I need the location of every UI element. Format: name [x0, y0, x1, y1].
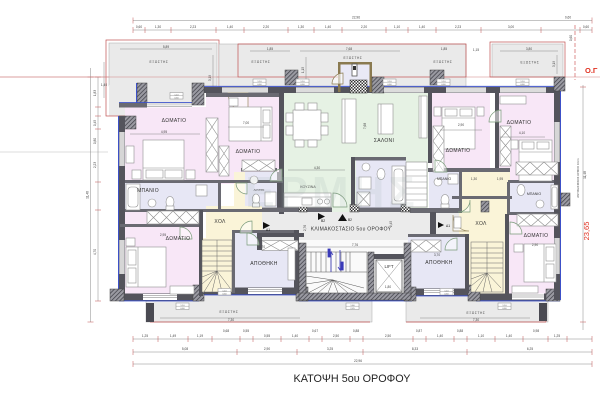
svg-text:ΣΑΛΟΝΙ: ΣΑΛΟΝΙ — [374, 138, 394, 144]
svg-text:1,40: 1,40 — [325, 25, 331, 29]
svg-text:7,30: 7,30 — [228, 318, 234, 322]
svg-text:ΑΠΟΘΗΚΗ: ΑΠΟΘΗΚΗ — [425, 260, 452, 266]
svg-text:1,40: 1,40 — [292, 334, 298, 338]
svg-text:B2: B2 — [348, 218, 352, 222]
svg-text:0,68: 0,68 — [223, 329, 229, 333]
svg-text:1,85: 1,85 — [267, 47, 273, 51]
svg-text:B2: B2 — [321, 219, 325, 223]
svg-text:3,70: 3,70 — [434, 253, 440, 257]
svg-text:ΑΝΤΙΣΕΙΣΜΙΚΟΣ ΑΡΜΟΣ 10cm: ΑΝΤΙΣΕΙΣΜΙΚΟΣ ΑΡΜΟΣ 10cm — [576, 158, 580, 198]
svg-text:3,00: 3,00 — [508, 25, 514, 29]
svg-text:2,50: 2,50 — [385, 334, 391, 338]
svg-text:ΔΩΜΑΤΙΟ: ΔΩΜΑΤΙΟ — [507, 120, 532, 126]
svg-text:0,80: 0,80 — [93, 138, 97, 144]
svg-text:2,23: 2,23 — [190, 25, 196, 29]
svg-text:3,70: 3,70 — [259, 245, 265, 249]
svg-text:0,67: 0,67 — [312, 329, 318, 333]
svg-text:1,40: 1,40 — [101, 83, 107, 87]
svg-text:1,40: 1,40 — [437, 334, 443, 338]
svg-text:2,90: 2,90 — [264, 347, 270, 351]
svg-text:ΚΑΤΟΨΗ 5ου ΟΡΟΦΟΥ: ΚΑΤΟΨΗ 5ου ΟΡΟΦΟΥ — [294, 373, 411, 385]
svg-text:0,98: 0,98 — [533, 329, 539, 333]
svg-text:5,89: 5,89 — [163, 45, 169, 49]
svg-text:ΕΞΩΣΤΗΣ: ΕΞΩΣΤΗΣ — [467, 311, 486, 315]
svg-text:0,60: 0,60 — [569, 35, 573, 41]
svg-text:1,40: 1,40 — [419, 25, 425, 29]
svg-text:6,25: 6,25 — [527, 347, 533, 351]
svg-text:2,95: 2,95 — [160, 233, 166, 237]
svg-text:2,23: 2,23 — [93, 162, 97, 168]
svg-text:1,15: 1,15 — [301, 67, 305, 73]
svg-text:4,95: 4,95 — [161, 130, 167, 134]
svg-text:ΕΞΩΣΤΗΣ: ΕΞΩΣΤΗΣ — [150, 60, 169, 64]
svg-text:0,60: 0,60 — [136, 25, 142, 29]
svg-text:ΜΠΑΝΙΟ: ΜΠΑΝΙΟ — [137, 188, 159, 194]
svg-text:ΔΩΜΑΤΙΟ: ΔΩΜΑΤΙΟ — [236, 149, 261, 155]
svg-text:ΕΡΜΗΣ: ΕΡΜΗΣ — [245, 168, 419, 217]
svg-text:ΕΞΩΣΤΗΣ: ΕΞΩΣΤΗΣ — [521, 61, 540, 65]
svg-text:8,33: 8,33 — [412, 347, 418, 351]
svg-text:Δ1: Δ1 — [266, 228, 270, 232]
svg-text:11,48: 11,48 — [86, 191, 90, 199]
svg-text:23,65: 23,65 — [582, 222, 591, 241]
svg-text:ΕΞΩΣΤΗΣ: ΕΞΩΣΤΗΣ — [252, 60, 271, 64]
svg-text:0,60: 0,60 — [583, 25, 589, 29]
svg-text:1,10: 1,10 — [394, 25, 400, 29]
svg-text:1,40: 1,40 — [506, 334, 512, 338]
svg-text:2,90: 2,90 — [532, 243, 538, 247]
svg-text:1,30: 1,30 — [298, 25, 304, 29]
svg-text:0,88: 0,88 — [457, 329, 463, 333]
svg-text:5,08: 5,08 — [182, 347, 188, 351]
svg-text:0,45: 0,45 — [93, 120, 97, 126]
svg-text:3,25: 3,25 — [327, 347, 333, 351]
svg-text:2,90: 2,90 — [458, 123, 464, 127]
svg-text:ΔΩΜΑΤΙΟ: ΔΩΜΑΤΙΟ — [162, 118, 187, 124]
svg-text:4,10: 4,10 — [519, 131, 525, 135]
svg-text:2,76: 2,76 — [303, 225, 307, 231]
svg-text:2,50: 2,50 — [333, 334, 339, 338]
svg-text:LIFT: LIFT — [384, 264, 393, 269]
svg-text:7,30: 7,30 — [473, 318, 479, 322]
svg-text:1,85: 1,85 — [441, 47, 447, 51]
svg-text:1,49: 1,49 — [170, 334, 176, 338]
svg-text:1,25: 1,25 — [554, 334, 560, 338]
svg-text:22,96: 22,96 — [354, 359, 362, 363]
svg-text:2,20: 2,20 — [263, 25, 269, 29]
svg-text:7,00: 7,00 — [243, 121, 249, 125]
svg-text:1,83: 1,83 — [93, 90, 97, 96]
svg-text:ΔΩΜΑΤΙΟ: ΔΩΜΑΤΙΟ — [524, 233, 549, 239]
svg-text:0,55: 0,55 — [243, 329, 249, 333]
svg-text:ΔΩΜΑΤΙΟ: ΔΩΜΑΤΙΟ — [446, 148, 471, 154]
svg-text:1,80: 1,80 — [385, 285, 391, 289]
svg-text:ΕΞΩΣΤΗΣ: ΕΞΩΣΤΗΣ — [344, 56, 363, 60]
svg-text:11,48: 11,48 — [583, 171, 587, 179]
svg-text:1,19: 1,19 — [197, 334, 203, 338]
svg-text:1,40: 1,40 — [227, 25, 233, 29]
svg-text:7,68: 7,68 — [363, 123, 367, 129]
svg-text:2,20: 2,20 — [361, 25, 367, 29]
svg-text:3,19: 3,19 — [208, 75, 212, 81]
svg-text:ΚΛΙΜΑΚΟΣΤΑΣΙΟ 5ου ΟΡΟΦΟΥ: ΚΛΙΜΑΚΟΣΤΑΣΙΟ 5ου ΟΡΟΦΟΥ — [311, 227, 392, 233]
svg-text:0,55: 0,55 — [264, 334, 270, 338]
svg-text:1,10: 1,10 — [478, 334, 484, 338]
svg-text:ΜΠΑΝΙΟ: ΜΠΑΝΙΟ — [527, 192, 542, 196]
svg-text:Ο.Γ: Ο.Γ — [585, 66, 598, 75]
svg-text:0,60: 0,60 — [565, 16, 571, 20]
svg-text:ΕΞΩΣΤΗΣ: ΕΞΩΣΤΗΣ — [220, 310, 239, 314]
svg-text:7,68: 7,68 — [346, 47, 352, 51]
svg-text:ΧΟΛ: ΧΟΛ — [475, 221, 487, 227]
svg-text:1,25: 1,25 — [142, 334, 148, 338]
svg-text:3,80: 3,80 — [526, 47, 532, 51]
svg-text:7,76: 7,76 — [352, 243, 358, 247]
svg-text:0,87: 0,87 — [416, 329, 422, 333]
svg-text:1,15: 1,15 — [473, 48, 479, 52]
svg-text:2,23: 2,23 — [455, 25, 461, 29]
svg-text:4,70: 4,70 — [93, 249, 97, 255]
svg-text:ΕΞΩΣΤΗΣ: ΕΞΩΣΤΗΣ — [434, 60, 453, 64]
svg-text:1,95: 1,95 — [497, 177, 503, 181]
svg-text:3,19: 3,19 — [552, 61, 556, 67]
svg-text:0,88: 0,88 — [353, 329, 359, 333]
svg-text:22,96: 22,96 — [352, 16, 360, 20]
svg-text:ΔΩΜΑΤΙΟ: ΔΩΜΑΤΙΟ — [166, 236, 191, 242]
svg-text:ΜΠΑΝΙΟ: ΜΠΑΝΙΟ — [437, 177, 452, 181]
svg-text:1,30: 1,30 — [471, 177, 477, 181]
svg-text:Δ1: Δ1 — [446, 224, 450, 228]
svg-text:ΑΠΟΘΗΚΗ: ΑΠΟΘΗΚΗ — [250, 261, 277, 267]
svg-text:ΧΟΛ: ΧΟΛ — [214, 219, 226, 225]
svg-text:1,30: 1,30 — [155, 25, 161, 29]
